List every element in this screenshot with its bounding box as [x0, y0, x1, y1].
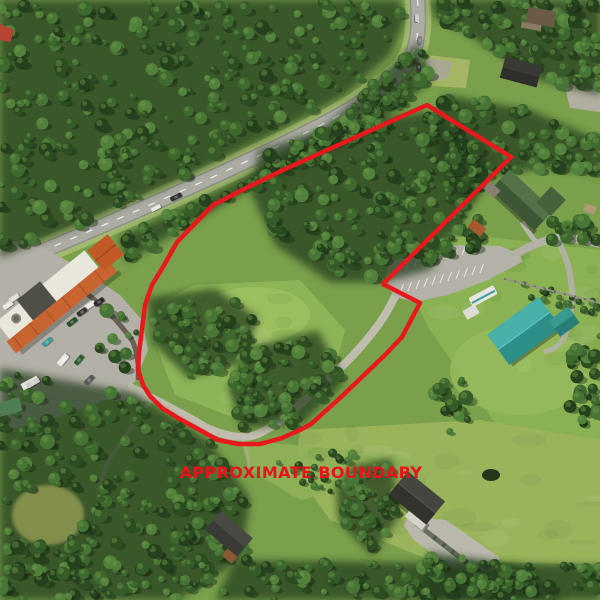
aerial-property-photo: APPROXIMATE BOUNDARY	[0, 0, 600, 600]
pond	[482, 469, 500, 481]
highway-vehicle	[414, 14, 419, 23]
highway-vehicle	[417, 36, 422, 45]
scene-canvas: APPROXIMATE BOUNDARY	[0, 0, 600, 600]
boundary-label: APPROXIMATE BOUNDARY	[180, 463, 423, 482]
highway-vehicle	[416, 62, 422, 72]
